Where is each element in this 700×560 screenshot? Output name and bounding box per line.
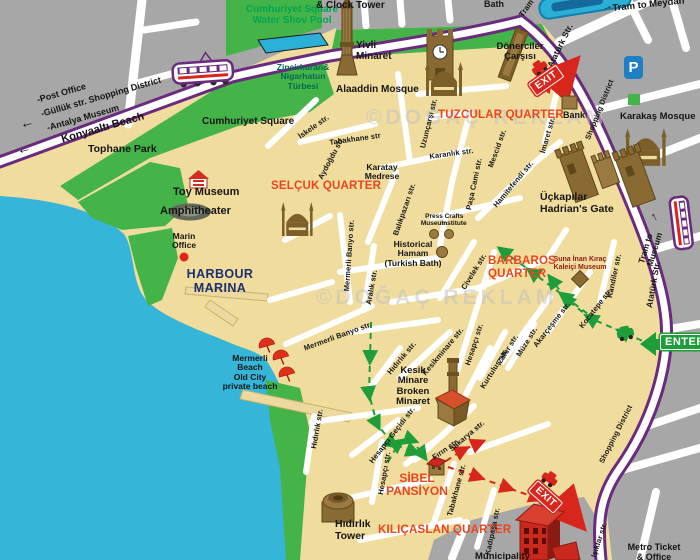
- amphitheater-icon: [169, 204, 211, 221]
- press-museum-icon: [430, 230, 439, 239]
- antalya-kaleici-map: ©DOĞAÇ REKLAM ©DOĞAÇ REKLAM -Post Office…: [0, 0, 700, 560]
- bank-icon: [562, 96, 577, 109]
- map-base-graphics: [0, 0, 700, 560]
- enter-sign: ENTER: [660, 334, 700, 350]
- marin-office-icon: [180, 253, 189, 262]
- hidirlik-tower-icon: [322, 493, 354, 522]
- parking-sign: P: [624, 56, 643, 79]
- hamam-icon: [437, 247, 448, 258]
- crafts-institute-icon: [445, 230, 454, 239]
